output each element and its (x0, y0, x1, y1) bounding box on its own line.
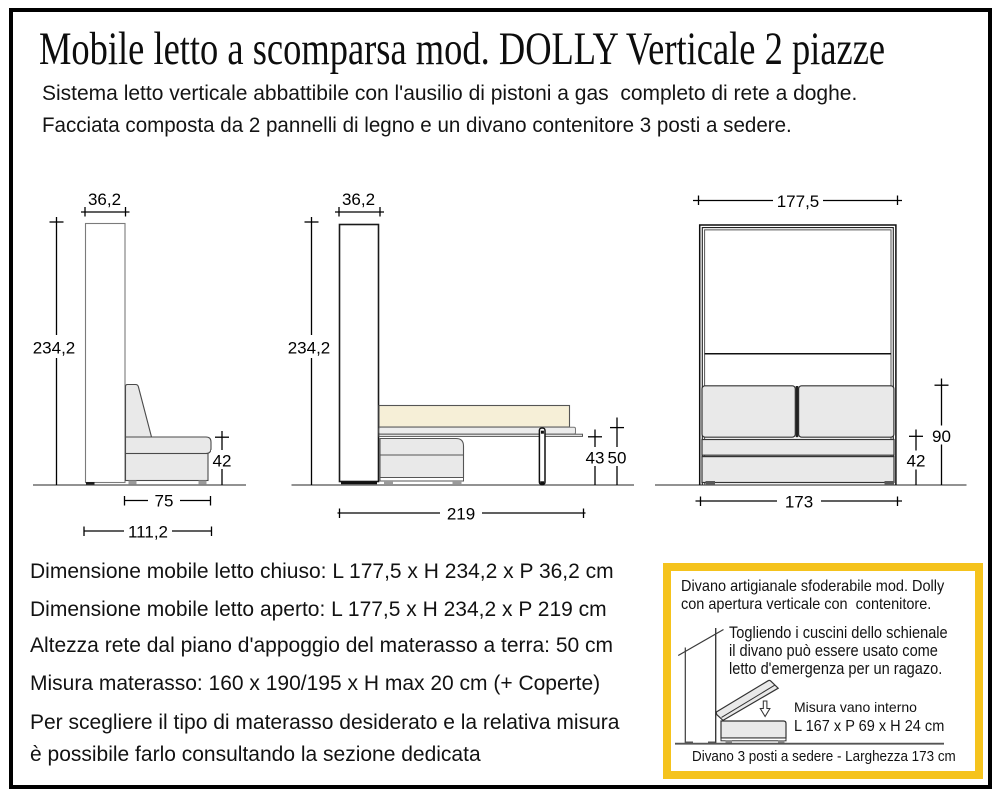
svg-text:43: 43 (586, 449, 605, 468)
svg-text:234,2: 234,2 (33, 339, 76, 358)
svg-text:219: 219 (447, 505, 475, 524)
svg-text:50: 50 (608, 449, 627, 468)
svg-text:36,2: 36,2 (342, 190, 375, 209)
svg-text:36,2: 36,2 (88, 190, 121, 209)
svg-text:234,2: 234,2 (288, 339, 331, 358)
svg-text:90: 90 (932, 427, 951, 446)
svg-text:75: 75 (155, 492, 174, 511)
svg-text:111,2: 111,2 (128, 523, 168, 542)
svg-text:173: 173 (785, 493, 813, 512)
svg-text:42: 42 (213, 452, 232, 471)
svg-text:177,5: 177,5 (777, 192, 820, 211)
svg-text:42: 42 (907, 452, 926, 471)
